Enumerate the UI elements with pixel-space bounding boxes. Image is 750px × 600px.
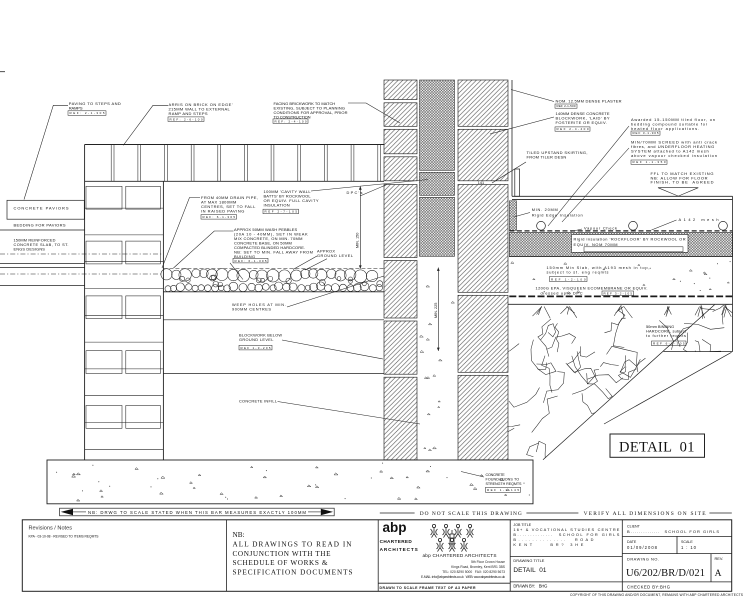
svg-text:REF 2-4-400: REF 2-4-400 bbox=[557, 127, 589, 131]
svg-text:REF 2-7-105: REF 2-7-105 bbox=[265, 210, 298, 214]
svg-text:NOM. 12.5MM DENSE PLASTER: NOM. 12.5MM DENSE PLASTER bbox=[556, 99, 622, 104]
svg-text:GROUND LEVEL: GROUND LEVEL bbox=[317, 253, 354, 258]
svg-text:5th Floor Crown House: 5th Floor Crown House bbox=[471, 560, 505, 564]
svg-text:Kings Road, Bromley, Kent BR1: Kings Road, Bromley, Kent BR1 3BS bbox=[451, 565, 506, 569]
svg-text:1 : 10: 1 : 10 bbox=[681, 545, 697, 550]
svg-text:141: 141 bbox=[478, 181, 484, 185]
svg-text:REF: 6-1-305: REF: 6-1-305 bbox=[203, 215, 236, 219]
svg-text:CONCRETE: CONCRETE bbox=[486, 473, 506, 477]
svg-text:CONCRETE INFILL: CONCRETE INFILL bbox=[239, 399, 278, 404]
svg-text:abp: abp bbox=[383, 520, 407, 535]
svg-text:above vapour checked insulatio: above vapour checked insulation bbox=[631, 153, 717, 158]
svg-text:REF 3-2-105: REF 3-2-105 bbox=[604, 291, 633, 295]
svg-text:EQUIV. NOM 70MM: EQUIV. NOM 70MM bbox=[574, 242, 618, 247]
svg-text:RAMP AND STEPS: RAMP AND STEPS bbox=[169, 111, 208, 116]
svg-text:TEL: 020 8290 5000 FAX: 020: TEL: 020 8290 5000 FAX: 020 8290 5673 bbox=[442, 570, 505, 574]
svg-text:DRAWN BY: BHG: DRAWN BY: BHG bbox=[513, 584, 547, 589]
svg-text:DETAIL 01: DETAIL 01 bbox=[619, 440, 696, 456]
svg-text:REF 1-1-145: REF 1-1-145 bbox=[487, 488, 519, 492]
svg-text:abp CHARTERED ARCHITECTS: abp CHARTERED ARCHITECTS bbox=[423, 553, 497, 558]
svg-text:DRAWN TO SCALE FRAME TEXT OF A: DRAWN TO SCALE FRAME TEXT OF A3 PAPER bbox=[380, 586, 476, 590]
svg-text:REF 2-1-500: REF 2-1-500 bbox=[557, 104, 576, 108]
svg-text:Rigid insulation 'ROCKFLOOR' B: Rigid insulation 'ROCKFLOOR' BY ROCKWOOL… bbox=[574, 236, 686, 241]
svg-text:DRAWING TITLE: DRAWING TITLE bbox=[513, 558, 544, 563]
svg-text:CLIENT: CLIENT bbox=[627, 524, 641, 528]
svg-text:REF: 2-1-305: REF: 2-1-305 bbox=[70, 111, 105, 115]
svg-text:FOSTERITE OR EQUIV.: FOSTERITE OR EQUIV. bbox=[556, 120, 607, 125]
svg-text:B.............. SCHOOL FOR GI: B.............. SCHOOL FOR GIRLS bbox=[627, 529, 719, 534]
svg-text:01/09/2008: 01/09/2008 bbox=[627, 545, 658, 550]
svg-text:CONJUNCTION WITH THE: CONJUNCTION WITH THE bbox=[233, 550, 332, 558]
svg-text:NB:: NB: bbox=[233, 531, 245, 539]
svg-text:ARCHITECTS: ARCHITECTS bbox=[380, 547, 419, 552]
svg-text:ALL DRAWINGS TO READ IN: ALL DRAWINGS TO READ IN bbox=[233, 540, 353, 548]
svg-text:DETAIL 01: DETAIL 01 bbox=[513, 567, 547, 574]
svg-text:FROM TILER DESN: FROM TILER DESN bbox=[527, 155, 567, 160]
svg-text:VERIFY ALL DIMENSIONS ON SITE: VERIFY ALL DIMENSIONS ON SITE bbox=[584, 511, 707, 517]
svg-text:Vapour Check: Vapour Check bbox=[584, 225, 617, 230]
svg-text:GROUND LEVEL: GROUND LEVEL bbox=[239, 337, 274, 342]
svg-text:COPYRIGHT OF THIS DRAWING AND/: COPYRIGHT OF THIS DRAWING AND/OR DOCUMEN… bbox=[570, 593, 744, 597]
svg-text:SCHEDULE OF WORKS &: SCHEDULE OF WORKS & bbox=[233, 559, 328, 567]
svg-text:MIN. 150: MIN. 150 bbox=[356, 233, 360, 248]
svg-text:IN RAISED PAVING: IN RAISED PAVING bbox=[201, 209, 244, 214]
svg-text:INSULATION: INSULATION bbox=[264, 203, 290, 208]
svg-text:REF: 2-6-100: REF: 2-6-100 bbox=[170, 117, 203, 121]
svg-text:REF 1-2-100: REF 1-2-100 bbox=[551, 277, 586, 281]
svg-text:subject to st. eng reqmts: subject to st. eng reqmts bbox=[547, 269, 609, 274]
svg-text:ENGS DESIGNS: ENGS DESIGNS bbox=[14, 246, 46, 251]
svg-text:REF 6-2-305: REF 6-2-305 bbox=[653, 342, 685, 346]
svg-text:U6/202/BR/D/021: U6/202/BR/D/021 bbox=[626, 568, 705, 579]
svg-text:DRAWING NO.: DRAWING NO. bbox=[627, 557, 659, 562]
svg-text:REF 1-1-350: REF 1-1-350 bbox=[633, 160, 666, 164]
svg-text:to further reqmts: to further reqmts bbox=[646, 333, 686, 338]
svg-text:STRENGTH REQMTS: STRENGTH REQMTS bbox=[486, 482, 523, 486]
svg-text:CHARTERED: CHARTERED bbox=[380, 539, 413, 544]
svg-text:FOUNDATIONS TO: FOUNDATIONS TO bbox=[486, 477, 520, 481]
svg-text:dressed upto DPC: dressed upto DPC bbox=[541, 290, 583, 295]
svg-text:REF 1-3-205: REF 1-3-205 bbox=[241, 346, 271, 350]
svg-text:RAMPS: RAMPS bbox=[69, 105, 83, 110]
svg-text:SCALE: SCALE bbox=[681, 540, 693, 544]
svg-text:KPA - 03-10-08 - REVISED TO IT: KPA - 03-10-08 - REVISED TO ITEMS REQMTS bbox=[29, 534, 100, 538]
svg-text:REF: 2-4-100: REF: 2-4-100 bbox=[275, 119, 307, 123]
svg-text:SPECIFICATION DOCUMENTS: SPECIFICATION DOCUMENTS bbox=[233, 569, 353, 577]
svg-text:REF: 6-1-305: REF: 6-1-305 bbox=[235, 259, 267, 263]
svg-text:E-MAIL: info@abparchitects.co.: E-MAIL: info@abparchitects.co.uk WEB: ww… bbox=[421, 575, 505, 579]
svg-text:900MM CENTRES: 900MM CENTRES bbox=[232, 306, 271, 311]
svg-text:REV.: REV. bbox=[715, 556, 724, 561]
svg-text:Rigid Edge Insulation: Rigid Edge Insulation bbox=[532, 212, 583, 217]
svg-text:REF 3-1-905: REF 3-1-905 bbox=[633, 131, 659, 135]
svg-text:MIN. 225: MIN. 225 bbox=[434, 303, 438, 318]
svg-text:A142 mesh: A142 mesh bbox=[679, 217, 719, 222]
svg-text:DATE: DATE bbox=[627, 540, 637, 544]
svg-text:CONCRETE PAVIORS: CONCRETE PAVIORS bbox=[14, 206, 69, 211]
svg-text:Revisions / Notes: Revisions / Notes bbox=[29, 526, 73, 532]
svg-text:FINISH, TO BE AGREED: FINISH, TO BE AGREED bbox=[651, 180, 714, 185]
svg-text:BEDDING FOR PAVIORS: BEDDING FOR PAVIORS bbox=[14, 223, 66, 228]
svg-text:DO NOT SCALE THIS DRAWING: DO NOT SCALE THIS DRAWING bbox=[420, 511, 522, 517]
svg-text:NB: DRWG TO SCALE STATED WHEN: NB: DRWG TO SCALE STATED WHEN THIS BAR M… bbox=[88, 510, 306, 515]
svg-text:A: A bbox=[715, 569, 722, 579]
svg-text:CHECKED BY:BHG: CHECKED BY:BHG bbox=[627, 584, 670, 589]
